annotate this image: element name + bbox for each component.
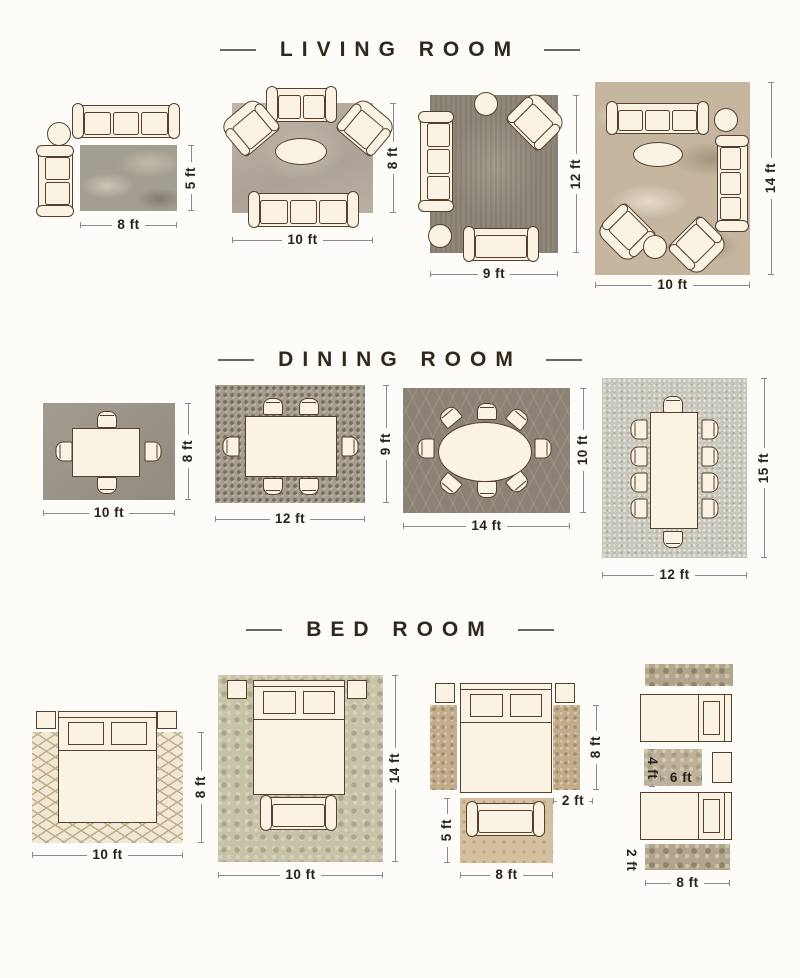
dining-chair <box>477 403 497 420</box>
section-title-living-room: LIVING ROOM <box>0 38 800 62</box>
mid-rug-width-dimension: 6 ft <box>660 771 702 785</box>
nightstand <box>712 752 732 783</box>
foot-rug-width-dimension: 8 ft <box>460 868 553 882</box>
dimension-label: 8 ft <box>676 876 698 890</box>
title-dash <box>546 359 582 362</box>
title-dash <box>544 49 580 52</box>
round-side-table <box>47 122 71 146</box>
width-dimension: 14 ft <box>403 519 570 533</box>
dimension-label: 10 ft <box>94 506 124 520</box>
dimension-label: 5 ft <box>184 167 198 189</box>
dimension-label: 9 ft <box>379 433 393 455</box>
nightstand <box>36 711 56 729</box>
bed-divider <box>698 694 699 742</box>
headboard <box>724 694 725 742</box>
dining-chair <box>145 442 162 462</box>
height-dimension: 12 ft <box>568 95 584 253</box>
loveseat <box>465 228 537 261</box>
round-side-table <box>643 235 667 259</box>
runner-rug <box>645 844 730 870</box>
section-title-dining-room: DINING ROOM <box>0 348 800 372</box>
dining-chair <box>631 473 648 493</box>
width-dimension: 10 ft <box>218 868 383 882</box>
dimension-label: 9 ft <box>483 267 505 281</box>
dining-table <box>245 416 337 477</box>
dimension-label: 10 ft <box>576 435 590 465</box>
nightstand <box>555 683 575 703</box>
dining-chair <box>418 439 435 459</box>
layout-dining-1: 10 ft 8 ft <box>30 398 205 530</box>
dimension-label: 8 ft <box>117 218 139 232</box>
nightstand <box>347 680 367 699</box>
runner-rug <box>553 705 580 790</box>
section-heading: LIVING ROOM <box>280 38 520 62</box>
dimension-label: 8 ft <box>386 147 400 169</box>
dining-chair <box>631 447 648 467</box>
height-dimension: 5 ft <box>183 145 199 211</box>
dimension-label: 14 ft <box>388 753 402 783</box>
height-dimension: 10 ft <box>575 388 591 513</box>
dining-chair <box>223 437 240 457</box>
width-dimension: 10 ft <box>32 848 183 862</box>
dining-chair <box>342 437 359 457</box>
sofa-3-seat <box>717 137 748 230</box>
layout-dining-4: 12 ft 15 ft <box>600 376 790 582</box>
dining-chair <box>56 442 73 462</box>
layout-bedroom-2: 10 ft 14 ft <box>213 670 403 885</box>
height-dimension: 8 ft <box>385 103 401 213</box>
layout-dining-2: 12 ft 9 ft <box>210 385 395 533</box>
dimension-label: 5 ft <box>440 819 454 841</box>
layout-living-2: 10 ft 8 ft <box>215 88 405 253</box>
dining-table <box>72 428 140 477</box>
runner-length-dimension: 8 ft <box>645 876 730 890</box>
dimension-label: 8 ft <box>589 736 603 758</box>
dining-chair <box>702 447 719 467</box>
dining-chair <box>263 478 283 495</box>
layout-bedroom-3: 8 ft 2 ft 5 ft 8 ft <box>425 672 605 887</box>
headboard <box>724 792 725 840</box>
layout-bedroom-4: 4 ft 6 ft 2 ft 8 ft <box>622 658 792 890</box>
dimension-label: 8 ft <box>194 776 208 798</box>
dimension-label: 15 ft <box>757 453 771 483</box>
runner-width-dimension: 2 ft <box>553 794 593 808</box>
dimension-label: 14 ft <box>471 519 501 533</box>
section-heading: DINING ROOM <box>278 348 522 372</box>
oval-coffee-table <box>275 138 327 165</box>
oval-coffee-table <box>633 142 683 167</box>
dining-chair <box>702 473 719 493</box>
layout-living-4: 10 ft 14 ft <box>595 75 790 300</box>
width-dimension: 9 ft <box>430 267 558 281</box>
twin-bed <box>640 694 732 742</box>
sofa-3-seat <box>608 103 707 134</box>
section-heading: BED ROOM <box>306 618 494 642</box>
pillow <box>510 694 543 717</box>
dimension-label: 10 ft <box>657 278 687 292</box>
height-dimension: 8 ft <box>180 403 196 500</box>
bed <box>460 683 552 793</box>
runner-rug <box>645 664 733 686</box>
dining-table <box>650 412 698 529</box>
width-dimension: 12 ft <box>215 512 365 526</box>
height-dimension: 15 ft <box>756 378 772 558</box>
sofa-3-seat <box>250 193 357 227</box>
height-dimension: 14 ft <box>763 82 779 275</box>
dining-chair <box>663 531 683 548</box>
width-dimension: 10 ft <box>43 506 175 520</box>
dining-chair <box>702 499 719 519</box>
loveseat <box>38 147 73 215</box>
bench <box>468 803 543 836</box>
twin-bed <box>640 792 732 840</box>
title-dash <box>220 49 256 52</box>
sofa-3-seat <box>74 105 178 138</box>
width-dimension: 10 ft <box>232 233 373 247</box>
dining-chair <box>535 439 552 459</box>
dimension-label: 12 ft <box>659 568 689 582</box>
rug-size-guide: LIVING ROOM 8 ft 5 ft 10 ft 8 ft <box>0 0 800 978</box>
dining-chair <box>97 411 117 428</box>
width-dimension: 8 ft <box>80 218 177 232</box>
nightstand <box>227 680 247 699</box>
dining-chair <box>663 396 683 413</box>
height-dimension: 14 ft <box>387 675 403 862</box>
dimension-label: 10 ft <box>285 868 315 882</box>
dimension-label: 14 ft <box>764 163 778 193</box>
dimension-label: 8 ft <box>181 440 195 462</box>
pillow <box>703 799 720 833</box>
dining-chair <box>631 499 648 519</box>
layout-dining-3: 14 ft 10 ft <box>403 388 588 533</box>
title-dash <box>246 629 282 632</box>
section-title-bed-room: BED ROOM <box>0 618 800 642</box>
bench <box>262 797 335 830</box>
loveseat <box>268 88 335 122</box>
title-dash <box>218 359 254 362</box>
dimension-label: 4 ft <box>645 757 659 779</box>
pillow <box>68 722 104 745</box>
round-side-table <box>714 108 738 132</box>
width-dimension: 12 ft <box>602 568 747 582</box>
dining-chair <box>702 420 719 440</box>
dimension-label: 12 ft <box>275 512 305 526</box>
bed <box>253 680 345 795</box>
dining-chair <box>631 420 648 440</box>
bed <box>58 711 157 823</box>
pillow <box>470 694 503 717</box>
title-dash <box>518 629 554 632</box>
area-rug <box>80 145 177 211</box>
dining-chair <box>263 398 283 415</box>
foot-rug-height-dimension: 5 ft <box>439 798 455 863</box>
pillow <box>703 701 720 735</box>
dimension-label: 6 ft <box>670 771 692 785</box>
oval-dining-table <box>438 422 532 482</box>
round-side-table <box>428 224 452 248</box>
dining-chair <box>299 398 319 415</box>
width-dimension: 10 ft <box>595 278 750 292</box>
dining-chair <box>97 477 117 494</box>
dimension-label: 2 ft <box>624 849 638 871</box>
runner-width-dimension: 2 ft <box>623 844 639 870</box>
pillow <box>263 691 296 714</box>
dimension-label: 10 ft <box>287 233 317 247</box>
dimension-label: 8 ft <box>495 868 517 882</box>
sofa-3-seat <box>420 113 453 210</box>
nightstand <box>435 683 455 703</box>
bed-divider <box>698 792 699 840</box>
dimension-label: 10 ft <box>92 848 122 862</box>
dining-chair <box>299 478 319 495</box>
mid-rug-height-dimension: 4 ft <box>644 749 660 787</box>
runner-rug <box>430 705 457 790</box>
height-dimension: 8 ft <box>193 732 209 843</box>
layout-bedroom-1: 10 ft 8 ft <box>30 695 205 865</box>
nightstand <box>157 711 177 729</box>
layout-living-1: 8 ft 5 ft <box>30 95 205 245</box>
dimension-label: 12 ft <box>569 159 583 189</box>
runner-height-dimension: 8 ft <box>588 705 604 790</box>
pillow <box>111 722 147 745</box>
pillow <box>303 691 336 714</box>
round-side-table <box>474 92 498 116</box>
height-dimension: 9 ft <box>378 385 394 503</box>
dimension-label: 2 ft <box>562 794 584 808</box>
layout-living-3: 9 ft 12 ft <box>405 88 590 280</box>
dining-chair <box>477 481 497 498</box>
